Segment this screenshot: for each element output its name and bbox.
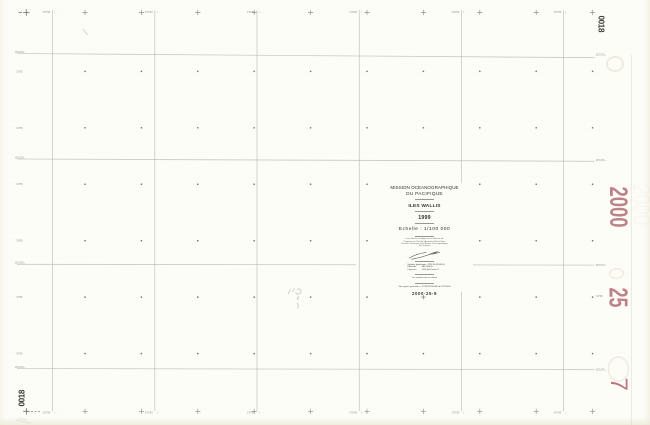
svg-text:‶13°05: ‶13°05 [16, 240, 24, 243]
svg-text:170°50′: 170°50′ [145, 411, 154, 414]
svg-text:| · · ·: | · · · [157, 11, 162, 14]
svg-text:‶13°05: ‶13°05 [16, 70, 24, 73]
svg-text:2000: 2000 [627, 184, 650, 225]
svg-text:| · · ·: | · · · [361, 11, 366, 14]
svg-text:| · · ·: | · · · [566, 411, 571, 414]
svg-text:170°50′: 170°50′ [349, 11, 358, 14]
svg-text:| · · ·: | · · · [566, 11, 571, 14]
svg-text:13°10′S L: 13°10′S L [15, 51, 26, 54]
svg-text:13°10′S L: 13°10′S L [15, 156, 26, 159]
svg-text:| · · ·: | · · · [259, 411, 264, 414]
svg-text:13°10′S L: 13°10′S L [596, 264, 607, 267]
svg-text:170°50′: 170°50′ [247, 411, 256, 414]
svg-text:170°50′: 170°50′ [43, 11, 52, 14]
svg-text:170°50′: 170°50′ [145, 11, 154, 14]
svg-text:| · · ·: | · · · [55, 411, 60, 414]
svg-text:| · · ·: | · · · [464, 411, 469, 414]
svg-text:170°50′: 170°50′ [349, 411, 358, 414]
svg-text:‶13°05: ‶13°05 [16, 296, 24, 299]
svg-text:25: 25 [604, 288, 634, 308]
svg-text:7: 7 [605, 378, 632, 391]
svg-text:| · · ·: | · · · [361, 411, 366, 414]
svg-text:| · · ·: | · · · [464, 11, 469, 14]
svg-text:| · · ·: | · · · [259, 11, 264, 14]
svg-text:170°50′: 170°50′ [452, 11, 461, 14]
svg-text:170°50′: 170°50′ [554, 411, 563, 414]
svg-text:170°50′: 170°50′ [554, 11, 563, 14]
svg-text:13°10′S L: 13°10′S L [15, 366, 26, 369]
svg-text:| · · ·: | · · · [55, 11, 60, 14]
svg-text:‶13°05: ‶13°05 [596, 295, 604, 298]
svg-text:‶13°05: ‶13°05 [16, 353, 24, 356]
svg-text:13°10′S L: 13°10′S L [596, 159, 607, 162]
svg-text:0018: 0018 [18, 389, 27, 406]
svg-text:13°10′S L: 13°10′S L [15, 262, 26, 265]
svg-text:170°50′: 170°50′ [247, 11, 256, 14]
svg-text:‶13°05: ‶13°05 [16, 127, 24, 130]
svg-text:13°10′S L: 13°10′S L [596, 368, 607, 371]
svg-text:0018: 0018 [597, 16, 606, 33]
svg-text:13°10′S L: 13°10′S L [596, 53, 607, 56]
svg-text:170°50′: 170°50′ [452, 411, 461, 414]
svg-text:170°50′: 170°50′ [43, 411, 52, 414]
svg-text:| · · ·: | · · · [157, 411, 162, 414]
svg-text:‶13°05: ‶13°05 [16, 183, 24, 186]
